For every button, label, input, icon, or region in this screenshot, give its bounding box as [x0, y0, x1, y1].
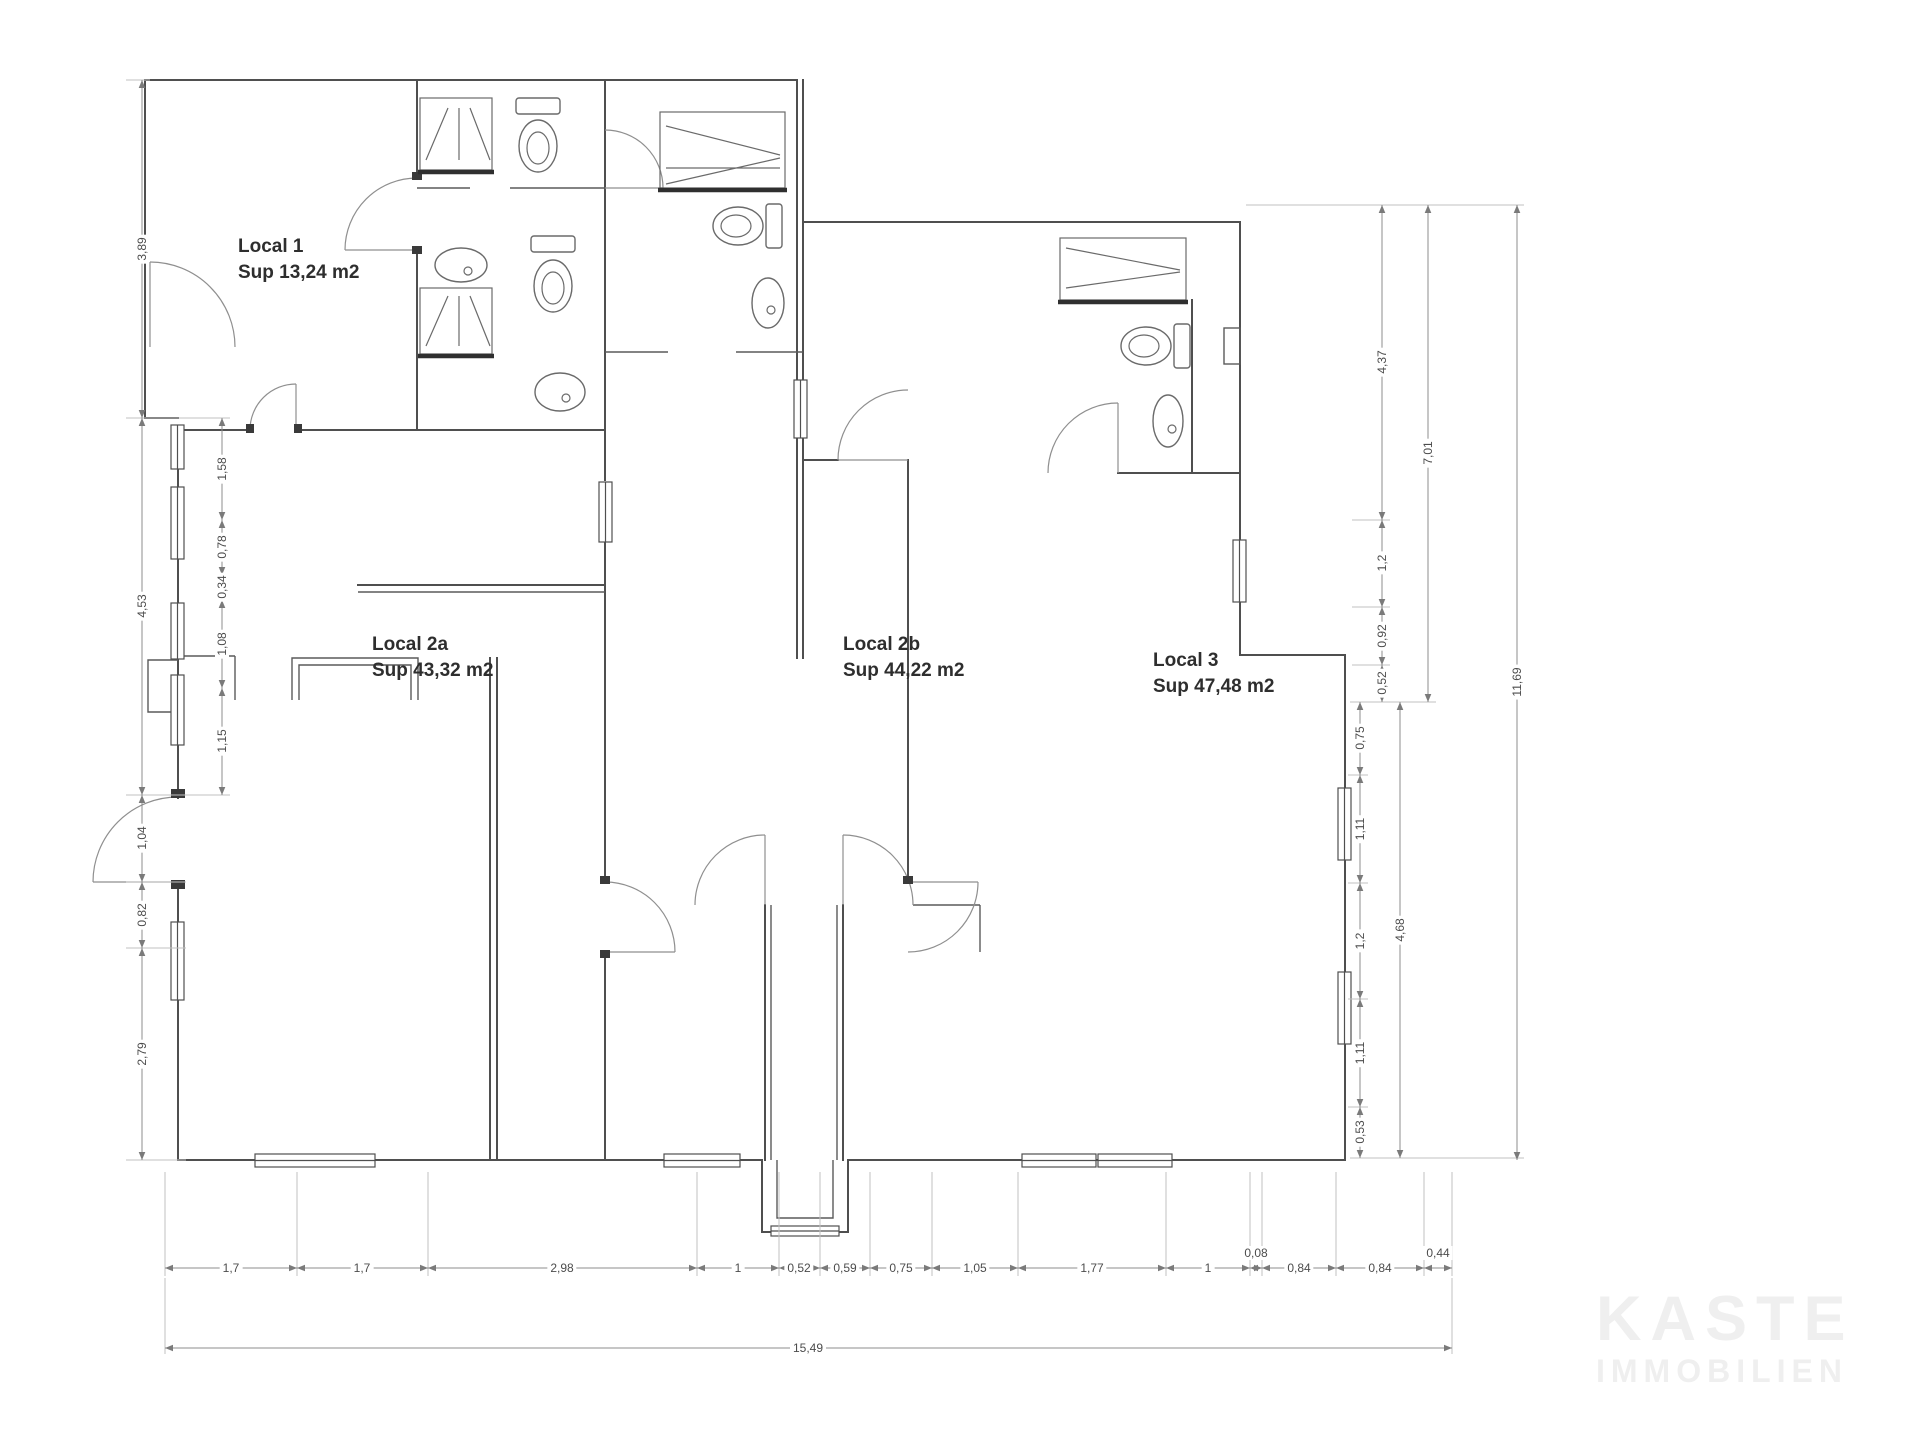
dimension-label: 1	[732, 1261, 745, 1275]
dimension-label: 4,37	[1375, 347, 1389, 376]
dimension-label: 7,01	[1421, 438, 1435, 467]
floor-plan-page: Local 1 Sup 13,24 m2 Local 2a Sup 43,32 …	[0, 0, 1920, 1441]
room-label-local-1: Local 1 Sup 13,24 m2	[238, 234, 359, 286]
watermark-line2: IMMOBILIEN	[1596, 1352, 1855, 1390]
dimension-label: 11,69	[1510, 664, 1524, 699]
door-arc	[1048, 403, 1118, 473]
door-arc	[605, 882, 675, 952]
dimension-label: 2,79	[135, 1039, 149, 1068]
dimension-label: 0,92	[1375, 621, 1389, 650]
window-icon	[1233, 540, 1246, 602]
dimension-label: 0,59	[830, 1261, 859, 1275]
door-arc	[838, 390, 908, 460]
room-area: Sup 43,32 m2	[372, 658, 493, 684]
door-arc	[150, 262, 235, 347]
dimension-label: 0,08	[1241, 1246, 1270, 1260]
room-name: Local 2b	[843, 632, 964, 658]
door-arc	[250, 384, 296, 430]
dimension-label: 0,75	[886, 1261, 915, 1275]
window-icon	[171, 675, 184, 745]
dimension-label: 1,7	[220, 1261, 243, 1275]
sink-icon	[435, 248, 487, 282]
shower-icon	[418, 98, 494, 172]
window-icon	[771, 1226, 839, 1236]
windows-layer	[171, 380, 1351, 1236]
dimension-label: 1,08	[215, 629, 229, 658]
window-icon	[599, 482, 612, 542]
room-name: Local 3	[1153, 648, 1274, 674]
toilet-icon	[531, 236, 575, 312]
dimension-label: 1,77	[1077, 1261, 1106, 1275]
room-name: Local 2a	[372, 632, 493, 658]
sink-icon	[535, 373, 585, 411]
shower-icon	[418, 288, 494, 356]
toilet-icon	[713, 204, 782, 248]
dimension-label: 0,84	[1284, 1261, 1313, 1275]
dimension-label: 1,7	[351, 1261, 374, 1275]
dimension-label: 1,58	[215, 454, 229, 483]
sink-icon	[752, 278, 784, 328]
toilet-icon	[1121, 324, 1190, 368]
dimension-label: 1,04	[135, 823, 149, 852]
window-icon	[171, 603, 184, 659]
window-icon	[1338, 788, 1351, 860]
dimension-label: 0,78	[215, 532, 229, 561]
door-arc	[605, 130, 663, 188]
floor-plan-drawing	[0, 0, 1920, 1441]
window-icon	[171, 922, 184, 1000]
toilet-icon	[516, 98, 560, 172]
dimension-label: 1,11	[1353, 815, 1367, 843]
shower-icon	[1058, 238, 1188, 302]
dimension-label: 1,2	[1375, 552, 1389, 575]
room-area: Sup 13,24 m2	[238, 260, 359, 286]
dimension-label: 1,05	[960, 1261, 989, 1275]
window-icon	[1022, 1154, 1096, 1167]
room-name: Local 1	[238, 234, 359, 260]
watermark-logo: KASTE IMMOBILIEN	[1596, 1286, 1855, 1390]
dimension-total-label: 15,49	[790, 1341, 826, 1355]
dimension-label: 1,11	[1353, 1039, 1367, 1067]
dimension-label: 4,68	[1393, 915, 1407, 944]
room-label-local-3: Local 3 Sup 47,48 m2	[1153, 648, 1274, 700]
window-icon	[171, 487, 184, 559]
dimension-label: 0,52	[784, 1261, 813, 1275]
room-area: Sup 44,22 m2	[843, 658, 964, 684]
door-arc	[695, 835, 765, 905]
dimension-label: 0,34	[215, 572, 229, 601]
dimension-label: 0,82	[135, 900, 149, 929]
dimension-label: 0,52	[1375, 668, 1389, 697]
dimension-label: 2,98	[547, 1261, 576, 1275]
dimension-label: 1	[1202, 1261, 1215, 1275]
window-icon	[171, 425, 184, 469]
dimension-label: 0,84	[1365, 1261, 1394, 1275]
dimension-label: 1,15	[215, 726, 229, 755]
dimension-label: 4,53	[135, 591, 149, 620]
window-icon	[255, 1154, 375, 1167]
window-icon	[794, 380, 807, 438]
dimension-label: 3,89	[135, 234, 149, 263]
door-arc	[908, 882, 978, 952]
dimension-label: 0,75	[1353, 723, 1367, 752]
watermark-line1: KASTE	[1596, 1286, 1855, 1352]
dimension-label: 1,2	[1353, 930, 1367, 953]
dimension-label: 0,44	[1423, 1246, 1452, 1260]
shower-icon	[658, 112, 787, 190]
room-label-local-2a: Local 2a Sup 43,32 m2	[372, 632, 493, 684]
room-area: Sup 47,48 m2	[1153, 674, 1274, 700]
window-icon	[1338, 972, 1351, 1044]
window-icon	[664, 1154, 740, 1167]
dimension-label: 0,53	[1353, 1117, 1367, 1146]
room-label-local-2b: Local 2b Sup 44,22 m2	[843, 632, 964, 684]
sink-icon	[1153, 395, 1183, 447]
door-arc	[843, 835, 913, 905]
window-icon	[1098, 1154, 1172, 1167]
